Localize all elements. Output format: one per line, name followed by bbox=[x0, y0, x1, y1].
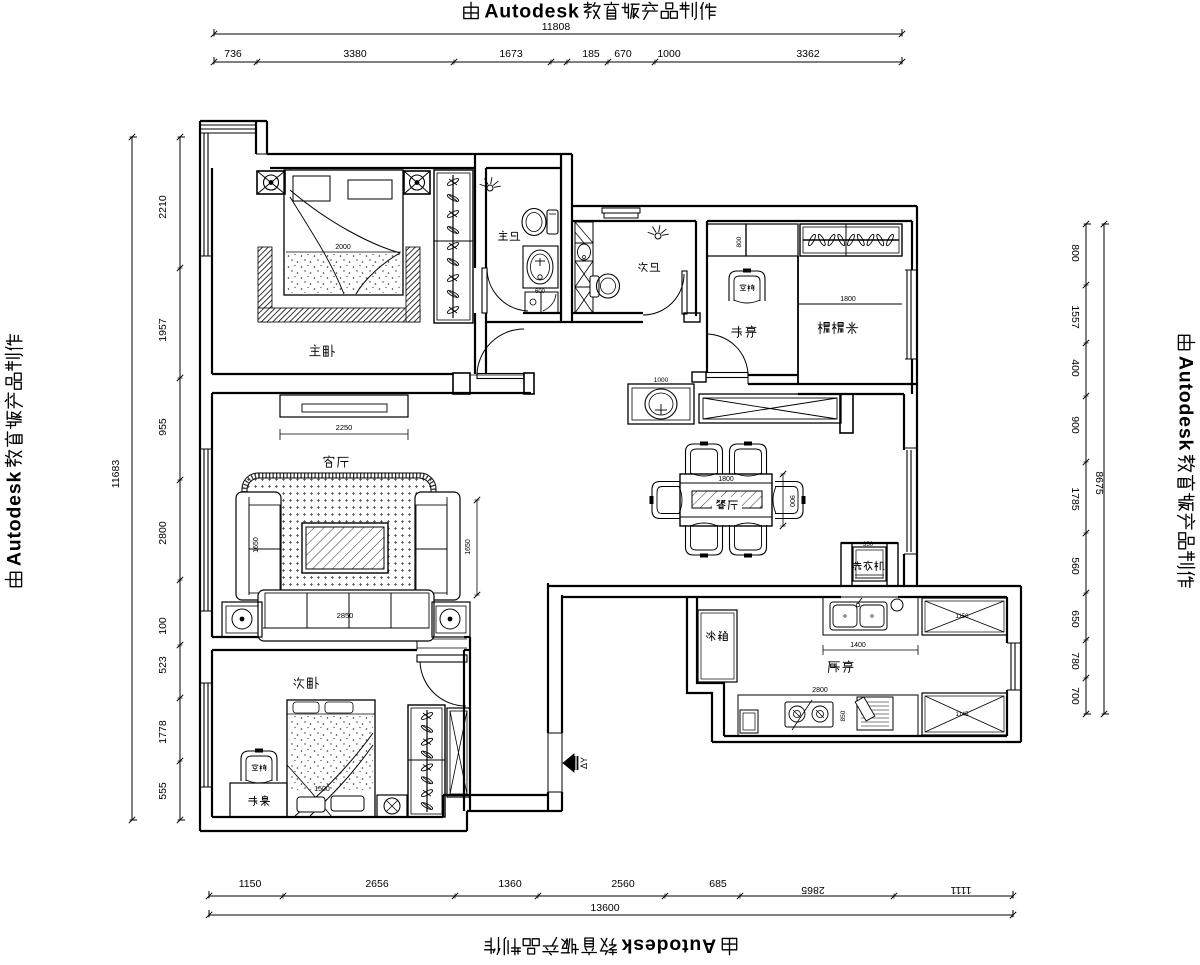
svg-text:400: 400 bbox=[1069, 359, 1081, 377]
svg-text:1778: 1778 bbox=[157, 720, 169, 744]
svg-text:1400: 1400 bbox=[850, 642, 866, 649]
svg-text:11683: 11683 bbox=[110, 460, 122, 489]
svg-text:650: 650 bbox=[1069, 610, 1081, 628]
svg-text:2850: 2850 bbox=[337, 611, 354, 620]
svg-text:1150: 1150 bbox=[956, 614, 970, 620]
svg-text:1785: 1785 bbox=[1069, 487, 1081, 511]
svg-text:850: 850 bbox=[840, 710, 847, 721]
svg-text:11808: 11808 bbox=[542, 21, 571, 33]
svg-text:1673: 1673 bbox=[499, 48, 523, 60]
svg-text:555: 555 bbox=[157, 782, 169, 800]
svg-text:1150: 1150 bbox=[239, 878, 262, 890]
svg-text:670: 670 bbox=[614, 48, 632, 60]
svg-text:2210: 2210 bbox=[157, 195, 169, 219]
svg-text:2000: 2000 bbox=[335, 244, 351, 251]
svg-text:1360: 1360 bbox=[498, 878, 522, 890]
svg-text:185: 185 bbox=[582, 48, 600, 60]
svg-text:1145: 1145 bbox=[956, 712, 970, 718]
svg-text:736: 736 bbox=[224, 48, 242, 60]
svg-text:800: 800 bbox=[736, 236, 743, 247]
svg-text:2250: 2250 bbox=[336, 423, 353, 432]
svg-text:1000: 1000 bbox=[657, 48, 681, 60]
svg-text:1000: 1000 bbox=[654, 377, 669, 384]
svg-text:3362: 3362 bbox=[796, 48, 820, 60]
svg-text:Autodesk: Autodesk bbox=[484, 1, 579, 23]
svg-text:Autodesk: Autodesk bbox=[1175, 356, 1197, 451]
svg-text:1111: 1111 bbox=[950, 884, 971, 896]
svg-text:8675: 8675 bbox=[1093, 471, 1105, 495]
svg-text:900: 900 bbox=[788, 495, 795, 507]
svg-text:2800: 2800 bbox=[812, 687, 828, 694]
svg-text:100: 100 bbox=[157, 617, 169, 635]
svg-text:ΔY: ΔY bbox=[579, 757, 589, 769]
svg-text:2800: 2800 bbox=[157, 521, 169, 545]
svg-text:1500: 1500 bbox=[314, 786, 330, 793]
svg-text:780: 780 bbox=[1069, 652, 1081, 670]
svg-text:523: 523 bbox=[157, 656, 169, 674]
svg-text:1650: 1650 bbox=[465, 539, 472, 555]
svg-text:685: 685 bbox=[709, 878, 727, 890]
svg-text:1957: 1957 bbox=[157, 318, 169, 342]
svg-text:560: 560 bbox=[1069, 557, 1081, 575]
svg-text:2656: 2656 bbox=[365, 878, 389, 890]
svg-text:Autodesk: Autodesk bbox=[4, 471, 26, 566]
svg-text:1800: 1800 bbox=[840, 296, 856, 303]
svg-text:3380: 3380 bbox=[343, 48, 367, 60]
svg-text:2560: 2560 bbox=[611, 878, 635, 890]
svg-text:2865: 2865 bbox=[801, 884, 825, 896]
svg-text:1800: 1800 bbox=[718, 476, 734, 483]
svg-text:900: 900 bbox=[1069, 416, 1081, 434]
svg-text:800: 800 bbox=[1069, 244, 1081, 262]
svg-text:700: 700 bbox=[1069, 687, 1081, 705]
svg-text:955: 955 bbox=[157, 418, 169, 436]
svg-text:13600: 13600 bbox=[590, 902, 619, 914]
svg-text:1557: 1557 bbox=[1069, 305, 1081, 329]
svg-text:350: 350 bbox=[863, 542, 874, 548]
svg-text:1650: 1650 bbox=[253, 537, 260, 553]
svg-text:Autodesk: Autodesk bbox=[621, 935, 716, 957]
